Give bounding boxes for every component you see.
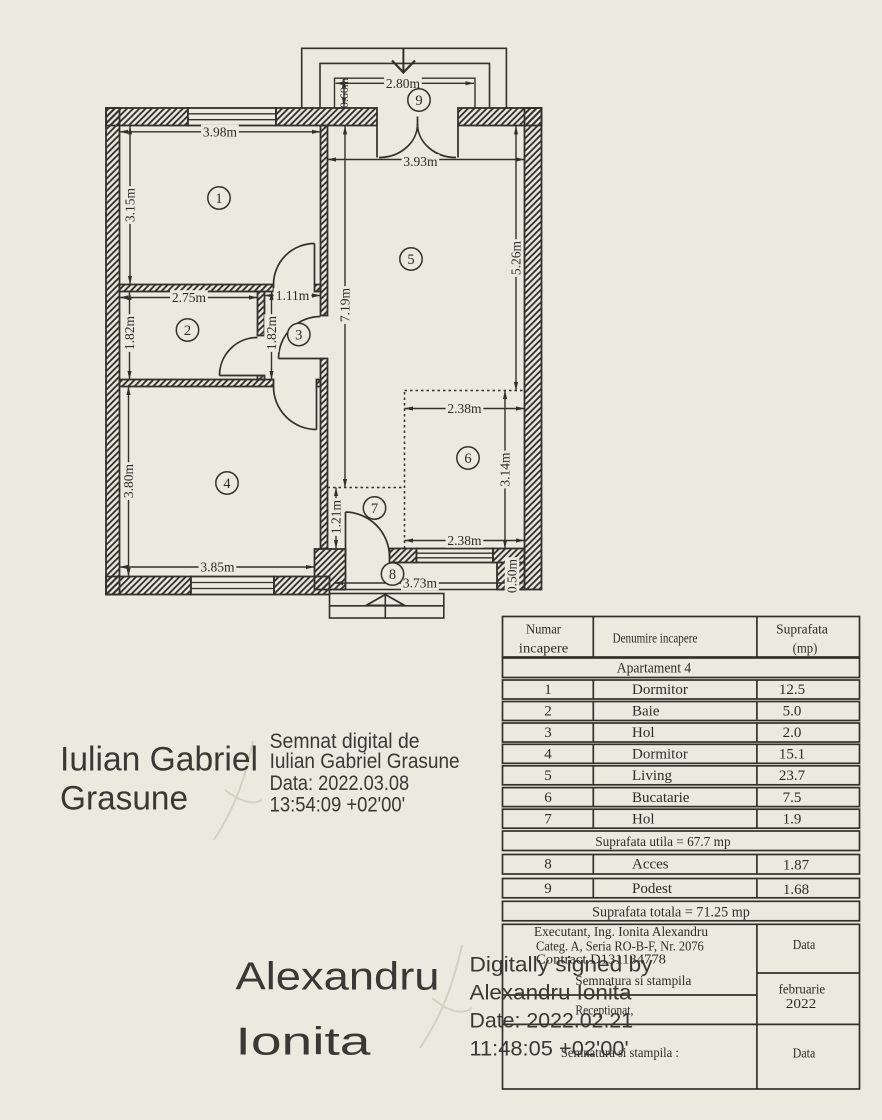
svg-text:Iulian Gabriel: Iulian Gabriel [60,740,258,778]
svg-text:2.38m: 2.38m [447,533,482,548]
svg-text:3.73m: 3.73m [403,576,438,591]
svg-text:Suprafata utila = 67.7 mp: Suprafata utila = 67.7 mp [595,835,730,850]
svg-text:Alexandru: Alexandru [236,956,440,999]
svg-text:4: 4 [544,747,552,763]
svg-text:3.14m: 3.14m [498,452,513,487]
svg-text:2.0: 2.0 [783,725,802,741]
svg-text:1.21m: 1.21m [329,499,344,534]
svg-text:9: 9 [544,881,552,897]
svg-text:3.85m: 3.85m [200,560,235,575]
svg-text:Suprafata totala = 71.25 mp: Suprafata totala = 71.25 mp [592,905,750,921]
svg-text:1.82m: 1.82m [122,315,137,350]
svg-text:3.93m: 3.93m [403,154,438,169]
svg-text:7.5: 7.5 [783,790,802,806]
svg-text:1.9: 1.9 [783,811,802,827]
svg-text:Data: Data [793,938,816,953]
svg-text:0.50m: 0.50m [505,558,520,593]
svg-text:8: 8 [389,567,396,583]
svg-text:Data: 2022.03.08: Data: 2022.03.08 [270,772,410,795]
svg-text:1.82m: 1.82m [264,315,279,350]
svg-text:2022: 2022 [786,997,817,1012]
svg-text:Podest: Podest [632,881,673,897]
svg-text:5: 5 [407,252,414,268]
svg-text:Date: 2022.02.21: Date: 2022.02.21 [470,1009,634,1032]
svg-text:11:48:05 +02'00': 11:48:05 +02'00' [470,1037,629,1060]
svg-text:6: 6 [464,451,471,467]
svg-text:12.5: 12.5 [779,682,805,698]
svg-text:Iulian Gabriel Grasune: Iulian Gabriel Grasune [270,750,460,773]
svg-text:5.0: 5.0 [783,704,802,720]
svg-text:Executant, Ing. Ionita Alexand: Executant, Ing. Ionita Alexandru [534,925,708,940]
svg-text:1.11m: 1.11m [276,288,310,303]
svg-text:5: 5 [544,768,552,784]
svg-text:15.1: 15.1 [779,747,805,763]
svg-text:2.75m: 2.75m [172,290,207,305]
svg-text:2.38m: 2.38m [447,401,482,416]
svg-text:1: 1 [544,682,552,698]
svg-text:1.87: 1.87 [783,858,810,874]
svg-text:3: 3 [295,327,302,343]
svg-text:3: 3 [544,725,552,741]
svg-text:13:54:09 +02'00': 13:54:09 +02'00' [270,793,406,816]
svg-text:Alexandru Ionita: Alexandru Ionita [470,981,632,1004]
svg-text:Digitally signed by: Digitally signed by [470,953,654,976]
svg-text:Hol: Hol [632,811,655,827]
svg-text:3.15m: 3.15m [123,187,138,222]
svg-text:Apartament 4: Apartament 4 [617,660,692,676]
svg-text:Living: Living [632,768,672,784]
svg-text:incapere: incapere [519,641,568,656]
svg-text:23.7: 23.7 [779,768,806,784]
svg-text:Denumire incapere: Denumire incapere [613,631,698,646]
svg-text:Numar: Numar [526,622,561,637]
svg-text:7: 7 [371,501,378,517]
svg-text:4: 4 [223,476,231,492]
svg-text:Ionita: Ionita [236,1021,371,1064]
svg-text:3.98m: 3.98m [203,124,238,139]
svg-text:1.68: 1.68 [783,882,809,898]
svg-text:8: 8 [544,857,552,873]
svg-text:februarie: februarie [779,982,826,997]
svg-text:Suprafata: Suprafata [776,622,829,637]
svg-text:Dormitor: Dormitor [632,747,688,763]
svg-text:Baie: Baie [632,704,660,720]
svg-text:6: 6 [544,790,552,806]
svg-text:Acces: Acces [632,857,669,873]
svg-text:1: 1 [215,191,222,207]
svg-text:2: 2 [184,323,191,339]
svg-text:Grasune: Grasune [60,779,188,817]
svg-text:7: 7 [544,811,552,827]
svg-text:2: 2 [544,704,552,720]
svg-text:5.26m: 5.26m [509,240,524,275]
svg-text:(mp): (mp) [793,641,818,656]
svg-text:9: 9 [415,93,422,109]
svg-text:Dormitor: Dormitor [632,682,688,698]
svg-text:Data: Data [793,1047,816,1062]
svg-text:Bucatarie: Bucatarie [632,790,690,806]
svg-text:Hol: Hol [632,725,655,741]
svg-text:7.19m: 7.19m [338,287,353,322]
svg-text:3.80m: 3.80m [121,463,136,498]
